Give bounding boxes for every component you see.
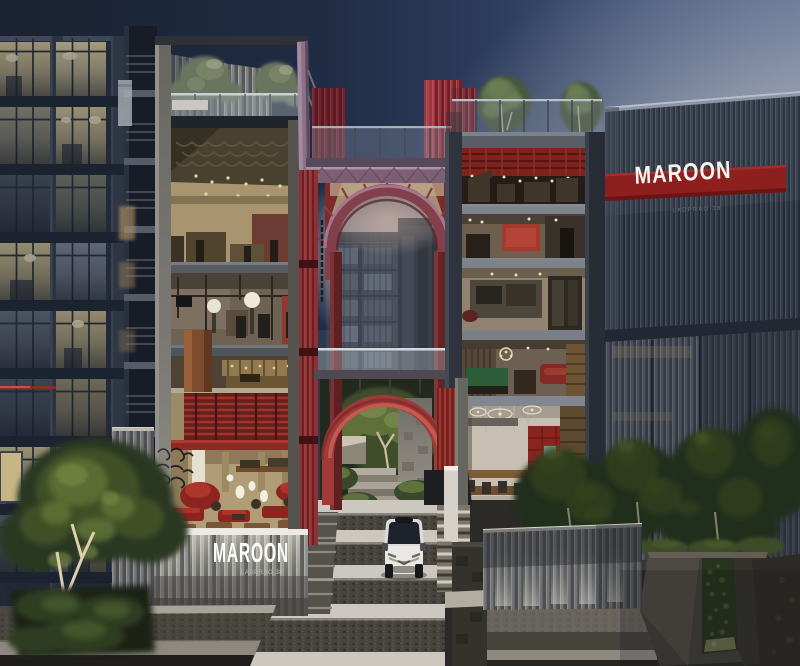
svg-text:LADPRAO 38: LADPRAO 38 bbox=[241, 570, 283, 576]
svg-text:MAROON: MAROON bbox=[213, 538, 289, 568]
